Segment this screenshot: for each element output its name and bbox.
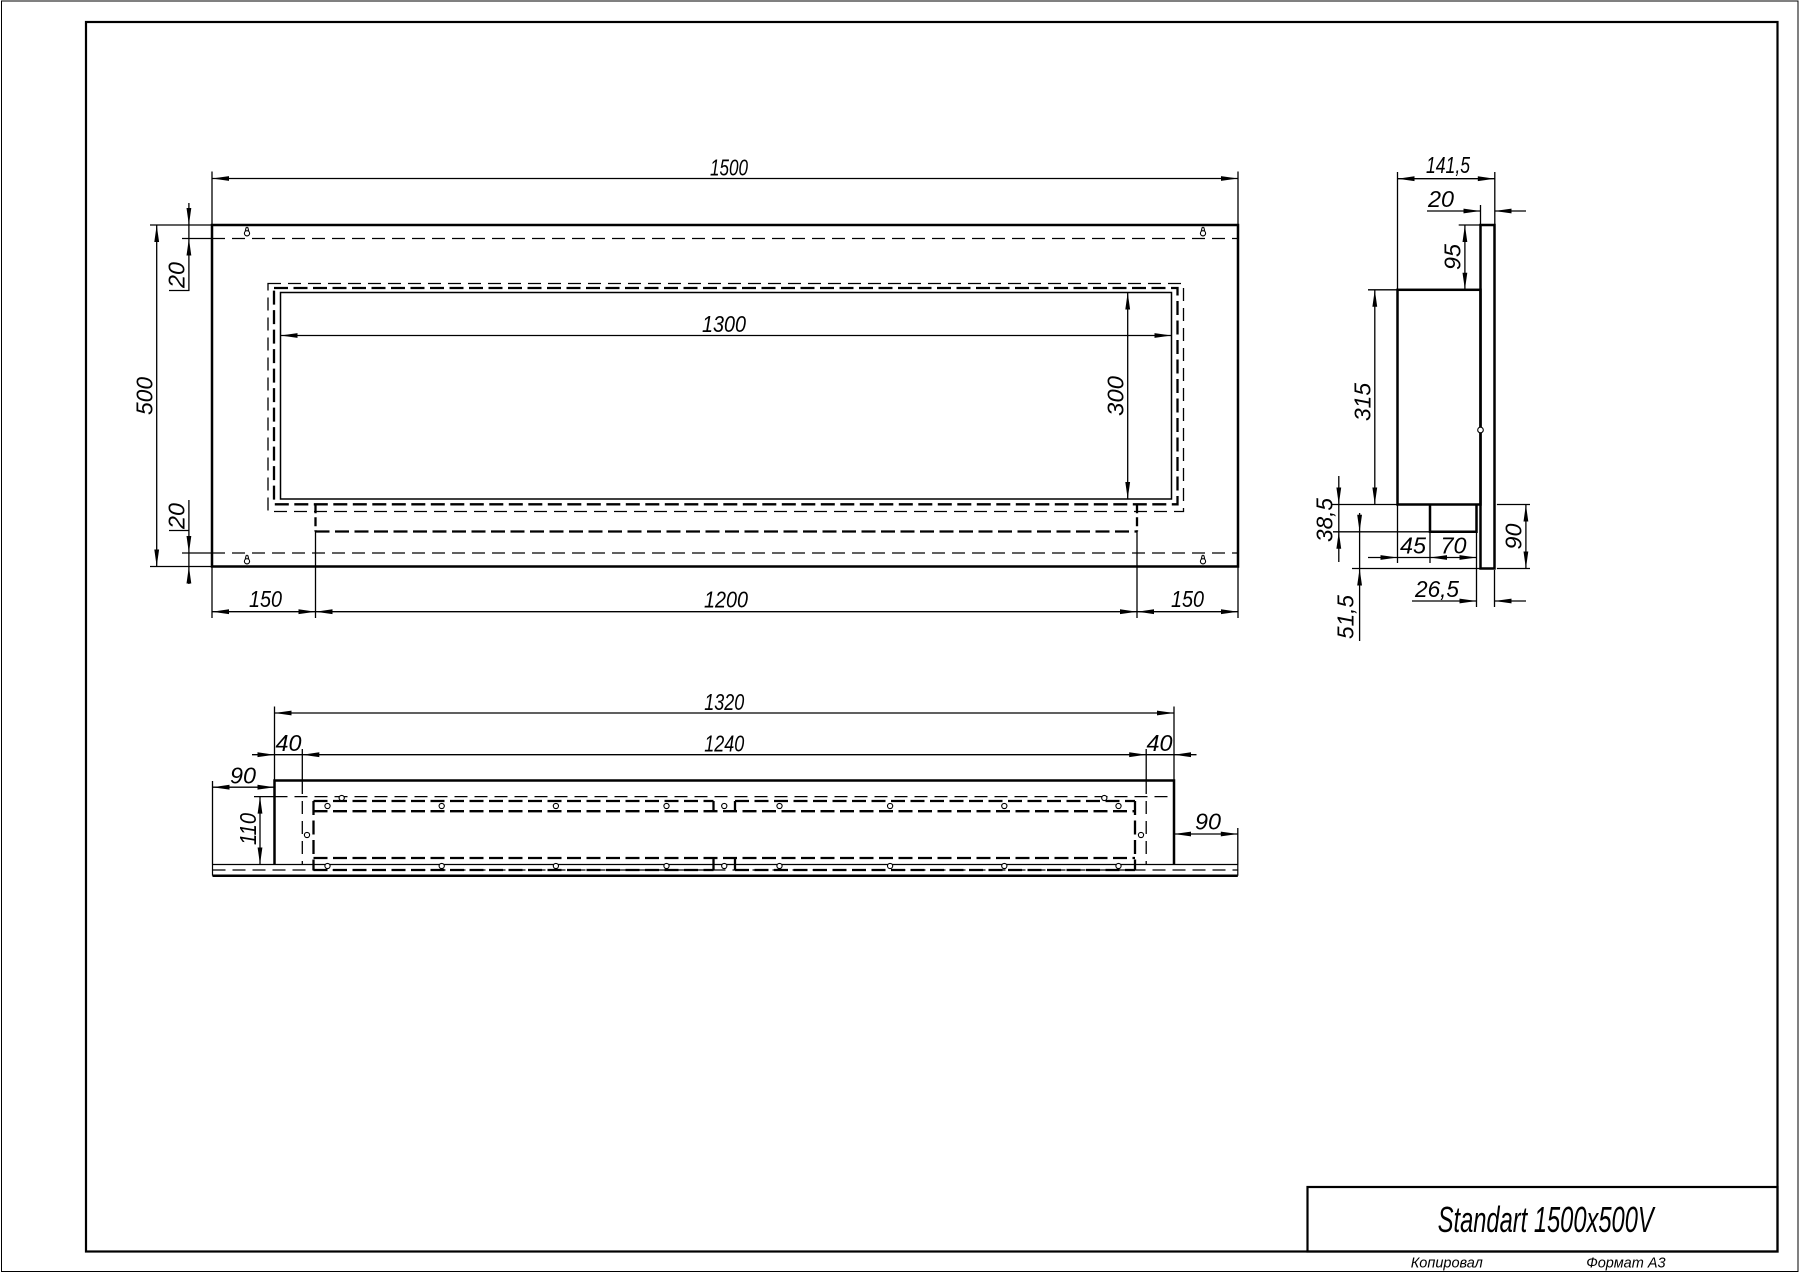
svg-text:51,5: 51,5 <box>1332 595 1358 639</box>
svg-text:90: 90 <box>230 763 256 789</box>
svg-text:315: 315 <box>1350 383 1376 421</box>
svg-text:110: 110 <box>235 813 261 845</box>
svg-text:90: 90 <box>1501 523 1527 549</box>
svg-text:1200: 1200 <box>704 587 748 613</box>
svg-text:141,5: 141,5 <box>1426 152 1470 178</box>
svg-text:90: 90 <box>1195 809 1221 835</box>
svg-text:40: 40 <box>1147 730 1173 756</box>
svg-text:1320: 1320 <box>704 689 744 715</box>
svg-text:45: 45 <box>1400 533 1426 559</box>
svg-text:Формат А3: Формат А3 <box>1586 1256 1665 1272</box>
svg-text:150: 150 <box>1171 586 1204 612</box>
svg-text:1240: 1240 <box>704 731 744 757</box>
svg-text:300: 300 <box>1103 376 1129 416</box>
svg-text:20: 20 <box>164 503 190 530</box>
svg-text:Standart 1500x500V: Standart 1500x500V <box>1438 1199 1656 1240</box>
svg-text:1500: 1500 <box>710 155 748 181</box>
svg-text:1300: 1300 <box>702 311 746 337</box>
svg-text:20: 20 <box>164 262 190 289</box>
svg-text:Копировал: Копировал <box>1411 1256 1483 1272</box>
svg-text:70: 70 <box>1441 533 1467 559</box>
svg-text:26,5: 26,5 <box>1414 576 1459 602</box>
svg-text:38,5: 38,5 <box>1312 498 1338 542</box>
svg-text:20: 20 <box>1427 186 1454 212</box>
svg-text:40: 40 <box>276 730 302 756</box>
svg-text:95: 95 <box>1440 244 1466 270</box>
svg-text:500: 500 <box>132 377 158 415</box>
svg-text:150: 150 <box>249 586 282 612</box>
